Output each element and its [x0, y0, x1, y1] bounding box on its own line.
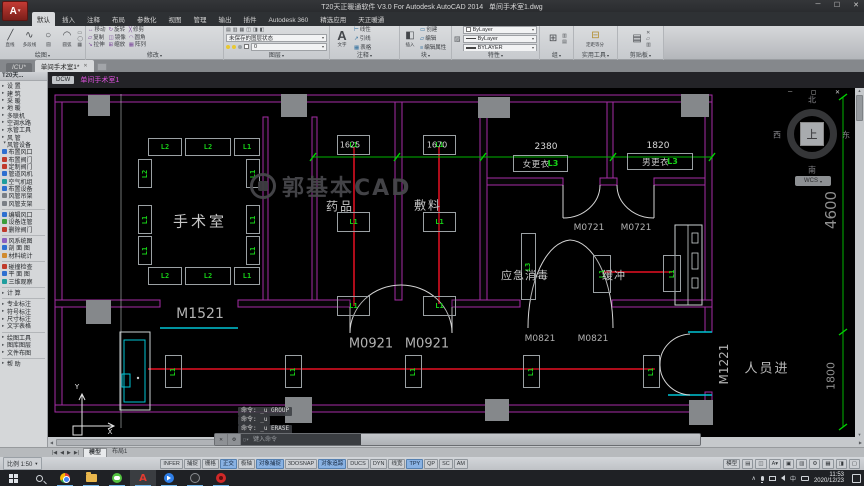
- create-block-tool[interactable]: ▭创建: [420, 26, 449, 34]
- palette-item[interactable]: ▸ 材料统计: [0, 252, 47, 259]
- light-fixture: L1: [246, 205, 260, 234]
- panel-group: ⊞ ▥▤ 组: [540, 26, 574, 60]
- room-name: 缓冲: [602, 267, 626, 283]
- layer-current-row[interactable]: 0▾: [226, 43, 327, 51]
- hatch-icon: ▦: [77, 42, 83, 48]
- compass-east[interactable]: 东: [842, 130, 850, 141]
- ribbon-tab[interactable]: 默认: [32, 12, 55, 26]
- palette-item-icon: [2, 193, 7, 198]
- watermark-logo-icon: [250, 173, 276, 199]
- light-fixture: L2: [185, 267, 231, 285]
- light-fixture: L2: [185, 138, 231, 156]
- light-fixture: L2: [148, 267, 182, 285]
- command-input-wrap: ▢▾: [241, 434, 361, 445]
- light-fixture: L1: [423, 296, 456, 316]
- status-right-cluster: 模型 ▤ ◫ A▾ ▣ ▥ ⚙ ▦ ◨ ▢: [723, 459, 860, 469]
- panel-layers: ▤▥▦◫◨◧ 未保存的图层状态▾ 0▾ 图层: [224, 26, 330, 60]
- ribbon-tab[interactable]: 管理: [189, 12, 212, 26]
- panel-block: ◧插入 ▭创建 ▱编辑 ≡编辑属性 块: [400, 26, 452, 60]
- panel-label-modify[interactable]: 修改: [86, 51, 223, 60]
- light-fixture: L1: [523, 355, 540, 388]
- layer-match-icon: ◧: [260, 27, 265, 33]
- wcs-dropdown[interactable]: WCS▾: [795, 176, 831, 186]
- quick-view-layouts-icon[interactable]: ▤: [742, 459, 753, 469]
- palette-item-icon: [2, 179, 7, 184]
- taskbar-wechat[interactable]: [104, 470, 130, 486]
- watermark: 郭基本CAD: [250, 170, 411, 202]
- layer-tools[interactable]: ▤▥▦◫◨◧: [226, 27, 327, 33]
- layer-off-icon: ▥: [233, 27, 238, 33]
- status-toggle[interactable]: SC: [439, 459, 453, 469]
- layer-freeze-icon: ◫: [246, 27, 251, 33]
- layout-tab-bar: |◀ ◀ ▶ ▶| 模型布局1: [0, 447, 864, 457]
- drawing-window-controls: ─ ▢ ✕: [788, 89, 840, 96]
- ribbon-tab[interactable]: 天正暖通: [353, 12, 389, 26]
- ribbon-tab[interactable]: 视图: [164, 12, 187, 26]
- panel-label-draw[interactable]: 绘图: [0, 51, 85, 60]
- measure-icon: ⊟: [591, 30, 599, 41]
- room-name: 敷料: [414, 197, 442, 214]
- scale-dropdown[interactable]: 比例 1:50▼: [3, 457, 42, 470]
- ribbon: ╱直线 ∿多段线 ○圆 ◠圆弧 ▭◯▦ 绘图 移动旋转修剪复制镜像圆角拉伸缩放阵…: [0, 26, 864, 60]
- viewcube-top-face[interactable]: 上: [800, 122, 824, 146]
- autoscale-icon[interactable]: ▥: [796, 459, 807, 469]
- taskbar-recorder[interactable]: [208, 470, 234, 486]
- circle-tool[interactable]: ○圆: [40, 30, 57, 48]
- ribbon-tab[interactable]: 参数化: [132, 12, 162, 26]
- keyboard-icon[interactable]: [801, 476, 809, 481]
- panel-draw: ╱直线 ∿多段线 ○圆 ◠圆弧 ▭◯▦ 绘图: [0, 26, 86, 60]
- polyline-tool[interactable]: ∿多段线: [21, 30, 38, 48]
- taskbar-autocad[interactable]: A: [130, 470, 156, 486]
- panel-label-layers[interactable]: 图层: [224, 51, 329, 60]
- modify-tool[interactable]: 拉伸: [88, 42, 106, 50]
- vertical-scrollbar[interactable]: ▲ ▼: [855, 88, 864, 437]
- maximize-icon[interactable]: ☐: [831, 1, 843, 9]
- palette-item-icon: [2, 157, 7, 162]
- layer-iso-icon: ▦: [239, 27, 244, 33]
- search-icon: [36, 475, 43, 482]
- microphone-icon[interactable]: [761, 476, 764, 481]
- paste-icon: ▤: [632, 33, 641, 44]
- close-icon[interactable]: ✕: [850, 1, 862, 9]
- palette-item-icon: [2, 171, 7, 176]
- app-menu-button[interactable]: A▾: [2, 1, 28, 21]
- tray-expand-icon[interactable]: ∧: [752, 475, 756, 482]
- ribbon-tab[interactable]: 插入: [57, 12, 80, 26]
- room-name: 手术室: [173, 211, 227, 232]
- door-label: M1221: [717, 344, 731, 385]
- ribbon-tab[interactable]: 精选应用: [315, 12, 351, 26]
- lineweight-icon: [466, 47, 476, 49]
- linear-dim-icon: ⊢: [354, 27, 359, 33]
- minimize-icon[interactable]: ─: [812, 1, 824, 9]
- taskbar-clock[interactable]: 11:53 2020/12/23: [814, 472, 844, 485]
- light-fixture: L1: [405, 355, 422, 388]
- compass-north[interactable]: 北: [808, 95, 816, 106]
- group-edit-icon[interactable]: ▤: [562, 39, 567, 45]
- vertical-scroll-thumb[interactable]: [856, 95, 863, 121]
- panel-label-clipboard[interactable]: 剪贴板: [618, 51, 663, 60]
- palette-item[interactable]: ▸ 风管支架: [0, 200, 47, 207]
- command-close-icon[interactable]: ✕: [215, 434, 228, 445]
- status-toggle[interactable]: 正交: [220, 459, 237, 469]
- first-layout-icon[interactable]: |◀: [52, 450, 57, 456]
- lock-icon: [238, 45, 242, 49]
- palette-item-icon: [2, 264, 7, 269]
- quick-view-drawings-icon[interactable]: ◫: [755, 459, 766, 469]
- light-fixture: L2: [148, 138, 182, 156]
- ucs-x-label: X: [108, 428, 113, 436]
- panel-utilities: ⊟定距等分 实用工具: [574, 26, 618, 60]
- t20-tool-palette: T20天... ▸ 设 置 ▸ 建 筑: [0, 72, 48, 447]
- panel-label-properties[interactable]: 特性: [452, 51, 539, 60]
- linetype-dropdown[interactable]: ByLayer▾: [463, 35, 537, 43]
- palette-item-icon: [2, 271, 7, 276]
- modify-tool[interactable]: 阵列: [129, 42, 146, 50]
- layer-color-swatch: [244, 44, 249, 49]
- palette-item-icon: [2, 164, 7, 169]
- paste-special-icon[interactable]: ▥: [646, 42, 651, 48]
- room-name: 应急消毒: [501, 267, 549, 283]
- taskbar-explorer[interactable]: [78, 470, 104, 486]
- room-label-box: 男更衣L3: [627, 153, 693, 170]
- edit-block-tool[interactable]: ▱编辑: [420, 35, 449, 43]
- file-tab-bar: ICU*✕单间手术室1*✕: [0, 60, 864, 72]
- new-drawing-tab-button[interactable]: [97, 63, 107, 71]
- palette-item[interactable]: ▸ 文字表格: [0, 322, 47, 329]
- speaker-icon[interactable]: [781, 475, 785, 481]
- palette-item-icon: [2, 279, 7, 284]
- window-controls: ─ ☐ ✕: [812, 1, 862, 9]
- palette-header[interactable]: T20天...: [0, 72, 47, 81]
- blue-app-icon: [164, 473, 174, 483]
- panel-modify: 移动旋转修剪复制镜像圆角拉伸缩放阵列 修改: [86, 26, 224, 60]
- dimension-text: 1800: [825, 362, 838, 390]
- panel-label-annotate[interactable]: 注释: [330, 51, 399, 60]
- measure-tool[interactable]: ⊟定距等分: [581, 30, 611, 48]
- door-label: M0921: [405, 337, 449, 352]
- folder-icon: [86, 474, 97, 482]
- door-label: M0721: [621, 223, 652, 233]
- light-fixture: L1: [663, 255, 681, 292]
- edit-attrs-icon: ≡: [420, 45, 423, 51]
- taskbar-search[interactable]: [26, 470, 52, 486]
- chrome-icon: [60, 473, 70, 483]
- light-fixture: L1: [643, 355, 660, 388]
- current-layer-dropdown[interactable]: 0▾: [251, 43, 327, 51]
- panel-label-group[interactable]: 组: [540, 51, 573, 60]
- next-layout-icon[interactable]: ▶: [67, 450, 71, 456]
- scroll-left-icon[interactable]: ◀: [50, 440, 53, 445]
- ribbon-tab[interactable]: 注释: [82, 12, 105, 26]
- system-tray: ∧ 中 11:53 2020/12/23: [752, 472, 861, 485]
- doc-close-icon[interactable]: ✕: [835, 89, 840, 96]
- cleanscreen-icon[interactable]: ▢: [849, 459, 860, 469]
- light-fixture: L1: [337, 296, 370, 316]
- palette-item-icon: [2, 227, 7, 232]
- command-history-line: 命令: _u: [238, 416, 270, 425]
- line-icon: ╱: [7, 30, 13, 41]
- annotation-scale-icon[interactable]: A▾: [769, 459, 781, 469]
- sun-icon: [232, 45, 236, 49]
- app-window: T20天正暖通软件 V3.0 For Autodesk AutoCAD 2014…: [0, 0, 864, 486]
- insert-block-icon: ◧: [405, 30, 414, 41]
- table-tool[interactable]: ▦表格: [354, 44, 397, 52]
- layout-tab[interactable]: 模型: [83, 448, 107, 457]
- window-title: T20天正暖通软件 V3.0 For Autodesk AutoCAD 2014…: [0, 2, 864, 12]
- palette-item-icon: [2, 238, 7, 243]
- status-toggle[interactable]: QP: [424, 459, 438, 469]
- group-icon: ⊞: [549, 33, 557, 44]
- linear-dim-tool[interactable]: ⊢线性: [354, 26, 397, 34]
- draw-extra-tools[interactable]: ▭◯▦: [77, 30, 83, 48]
- t20-document-bar: DCW 单间手术室1: [48, 72, 864, 88]
- layer-lock-icon: ◨: [253, 27, 258, 33]
- layer-state-dropdown[interactable]: 未保存的图层状态▾: [226, 34, 327, 42]
- status-toggle[interactable]: AM: [454, 459, 468, 469]
- doc-minimize-icon[interactable]: ─: [788, 89, 792, 96]
- drawing-canvas[interactable]: L2 L2 L1 L2 L2 L1 L2 L1 L1 L1 L1 L1 L1 L…: [48, 88, 855, 437]
- circle-icon: ○: [45, 30, 51, 41]
- palette-item[interactable]: ▸ 删除阀门: [0, 226, 47, 233]
- layout-tab[interactable]: 布局1: [107, 448, 132, 457]
- paste-tool[interactable]: ▤: [630, 33, 644, 44]
- autocad-icon: A: [139, 473, 147, 484]
- palette-item-icon: [2, 253, 7, 258]
- door-label: M0921: [349, 337, 393, 352]
- doc-restore-icon[interactable]: ▢: [811, 89, 817, 96]
- ucs-y-label: Y: [75, 383, 79, 391]
- close-tab-icon[interactable]: ✕: [83, 63, 87, 69]
- light-fixture: L1: [138, 205, 152, 234]
- door-label: M0821: [578, 334, 609, 344]
- ribbon-tab[interactable]: 插件: [239, 12, 262, 26]
- status-toggle[interactable]: 线宽: [388, 459, 405, 469]
- modify-tool[interactable]: 移动: [88, 27, 106, 35]
- panel-properties: ▨ ByLayer▾ ByLayer▾ BYLAYER▾ 特性: [452, 26, 540, 60]
- recorder-icon: [216, 473, 226, 483]
- polyline-icon: ∿: [25, 30, 33, 41]
- text-tool[interactable]: A文字: [332, 30, 352, 48]
- scroll-up-icon[interactable]: ▲: [858, 88, 862, 93]
- insert-block-tool[interactable]: ◧插入: [402, 30, 418, 48]
- command-input[interactable]: [251, 435, 359, 444]
- status-toggle[interactable]: 对象追踪: [318, 459, 346, 469]
- model-space-button[interactable]: 模型: [723, 459, 740, 469]
- command-history-line: 命令: _u GROUP: [238, 407, 292, 416]
- palette-item[interactable]: ▸ 三维观察: [0, 278, 47, 285]
- color-swatch: [466, 27, 471, 32]
- start-button[interactable]: [0, 470, 26, 486]
- light-fixture: L1: [138, 236, 152, 265]
- palette-item[interactable]: ▸ 文件布图: [0, 348, 47, 355]
- file-tab[interactable]: 单间手术室1*✕: [35, 60, 94, 72]
- door-label: M0721: [574, 223, 605, 233]
- palette-item[interactable]: ▸ 帮 助: [0, 360, 47, 367]
- layout-nav-buttons[interactable]: |◀ ◀ ▶ ▶|: [52, 450, 79, 456]
- windows-taskbar: A ∧ 中 11:53 2020/12/23: [0, 470, 864, 486]
- panel-label-block[interactable]: 块: [400, 51, 451, 60]
- ribbon-empty-area: [664, 26, 864, 59]
- ribbon-tab[interactable]: Autodesk 360: [264, 15, 314, 26]
- isolate-objects-icon[interactable]: ◨: [836, 459, 847, 469]
- title-bar: T20天正暖通软件 V3.0 For Autodesk AutoCAD 2014…: [0, 0, 864, 12]
- toolbar-lock-icon[interactable]: ▦: [822, 459, 833, 469]
- palette-item-icon: [2, 186, 7, 191]
- match-properties-icon[interactable]: ▨: [454, 35, 461, 43]
- palette-item-icon: [2, 201, 7, 206]
- arc-icon: ◠: [63, 30, 72, 41]
- document-name[interactable]: 单间手术室1: [80, 75, 119, 85]
- light-fixture: L1: [234, 138, 260, 156]
- modify-tool[interactable]: 旋转: [109, 27, 126, 35]
- palette-item-icon: [2, 219, 7, 224]
- compass-south[interactable]: 南: [808, 165, 816, 176]
- arc-tool[interactable]: ◠圆弧: [59, 30, 76, 48]
- dcw-button[interactable]: DCW: [52, 76, 74, 84]
- lineweight-dropdown[interactable]: BYLAYER▾: [463, 44, 537, 52]
- palette-item-icon: [2, 149, 7, 154]
- light-fixture: L1: [337, 212, 370, 232]
- annotation-visibility-icon[interactable]: ▣: [783, 459, 794, 469]
- palette-item[interactable]: ▸ 计 算: [0, 289, 47, 296]
- leader-icon: ↗: [354, 36, 359, 42]
- modify-tool[interactable]: 修剪: [129, 27, 146, 35]
- group-tool[interactable]: ⊞: [546, 33, 560, 44]
- door-label: M0821: [525, 334, 556, 344]
- entry-label: 人员进: [744, 358, 789, 377]
- compass-west[interactable]: 西: [773, 130, 781, 141]
- panel-label-utilities[interactable]: 实用工具: [574, 51, 617, 60]
- dimension-text: 1625: [340, 141, 360, 150]
- create-block-icon: ▭: [420, 27, 425, 33]
- status-toggle[interactable]: DUCS: [347, 459, 369, 469]
- ribbon-tab[interactable]: 布局: [107, 12, 130, 26]
- status-toggle[interactable]: INFER: [160, 459, 183, 469]
- status-bar: 比例 1:50▼ INFER捕捉栅格正交极轴对象捕捉3DOSNAP对象追踪DUC…: [0, 457, 864, 470]
- light-fixture: L1: [246, 236, 260, 265]
- chevron-down-icon: ▼: [34, 461, 38, 466]
- command-prompt-icon: ▢▾: [243, 437, 249, 443]
- prev-layout-icon[interactable]: ◀: [60, 450, 64, 456]
- door-label: M1521: [176, 306, 224, 322]
- expand-arrow-icon: ▸: [2, 142, 8, 147]
- last-layout-icon[interactable]: ▶|: [74, 450, 79, 456]
- line-tool[interactable]: ╱直线: [2, 30, 19, 48]
- status-toggle[interactable]: 对象捕捉: [256, 459, 284, 469]
- object-color-dropdown[interactable]: ByLayer▾: [463, 26, 537, 34]
- display-icon[interactable]: [769, 476, 776, 481]
- status-toggle[interactable]: 捕捉: [184, 459, 201, 469]
- modify-tool[interactable]: 缩放: [109, 42, 126, 50]
- command-customize-icon[interactable]: ⚙: [228, 434, 241, 445]
- dimension-text: 4600: [822, 191, 840, 229]
- bulb-on-icon: [226, 45, 230, 49]
- ribbon-tab[interactable]: 输出: [214, 12, 237, 26]
- ime-indicator[interactable]: 中: [790, 474, 796, 483]
- leader-tool[interactable]: ↗引线: [354, 35, 397, 43]
- dimension-text: 1670: [427, 141, 447, 150]
- light-fixture: L1: [285, 355, 302, 388]
- room-label-box: 女更衣L3: [513, 155, 568, 172]
- status-toggle[interactable]: DYN: [370, 459, 388, 469]
- status-toggle[interactable]: 3DOSNAP: [285, 459, 317, 469]
- light-fixture: L2: [138, 159, 152, 188]
- light-fixture: L1: [234, 267, 260, 285]
- palette-item-icon: [2, 245, 7, 250]
- scroll-right-icon[interactable]: ▶: [859, 440, 862, 445]
- panel-clipboard: ▤ ✕▱▥ 剪贴板: [618, 26, 664, 60]
- windows-logo-icon: [9, 474, 18, 483]
- command-bar-body[interactable]: [361, 434, 700, 445]
- dimension-text: 1820: [647, 141, 670, 151]
- status-toggle[interactable]: 栅格: [202, 459, 219, 469]
- taskbar-app-dark[interactable]: [182, 470, 208, 486]
- linetype-icon: [466, 38, 476, 39]
- edit-attrs-tool[interactable]: ≡编辑属性: [420, 44, 449, 52]
- dimension-text: 2380: [535, 142, 558, 152]
- layer-props-icon: ▤: [226, 27, 231, 33]
- taskbar-app-blue[interactable]: [156, 470, 182, 486]
- ribbon-tab-bar: 默认插入注释布局参数化视图管理输出插件Autodesk 360精选应用天正暖通: [0, 12, 864, 26]
- table-icon: ▦: [354, 45, 359, 51]
- file-tab[interactable]: ICU*✕: [6, 63, 32, 72]
- panel-annotate: A文字 ⊢线性 ↗引线 ▦表格 注释: [330, 26, 400, 60]
- wechat-icon: [112, 473, 122, 483]
- notification-center-icon[interactable]: [852, 474, 861, 483]
- dark-app-icon: [190, 473, 200, 483]
- taskbar-chrome[interactable]: [52, 470, 78, 486]
- light-fixture: L1: [423, 212, 456, 232]
- light-fixture: L1: [165, 355, 182, 388]
- palette-item-icon: [2, 212, 7, 217]
- edit-block-icon: ▱: [420, 36, 424, 42]
- status-toggle[interactable]: 极轴: [238, 459, 255, 469]
- status-toggle[interactable]: TPY: [406, 459, 423, 469]
- workspace-switch-icon[interactable]: ⚙: [809, 459, 820, 469]
